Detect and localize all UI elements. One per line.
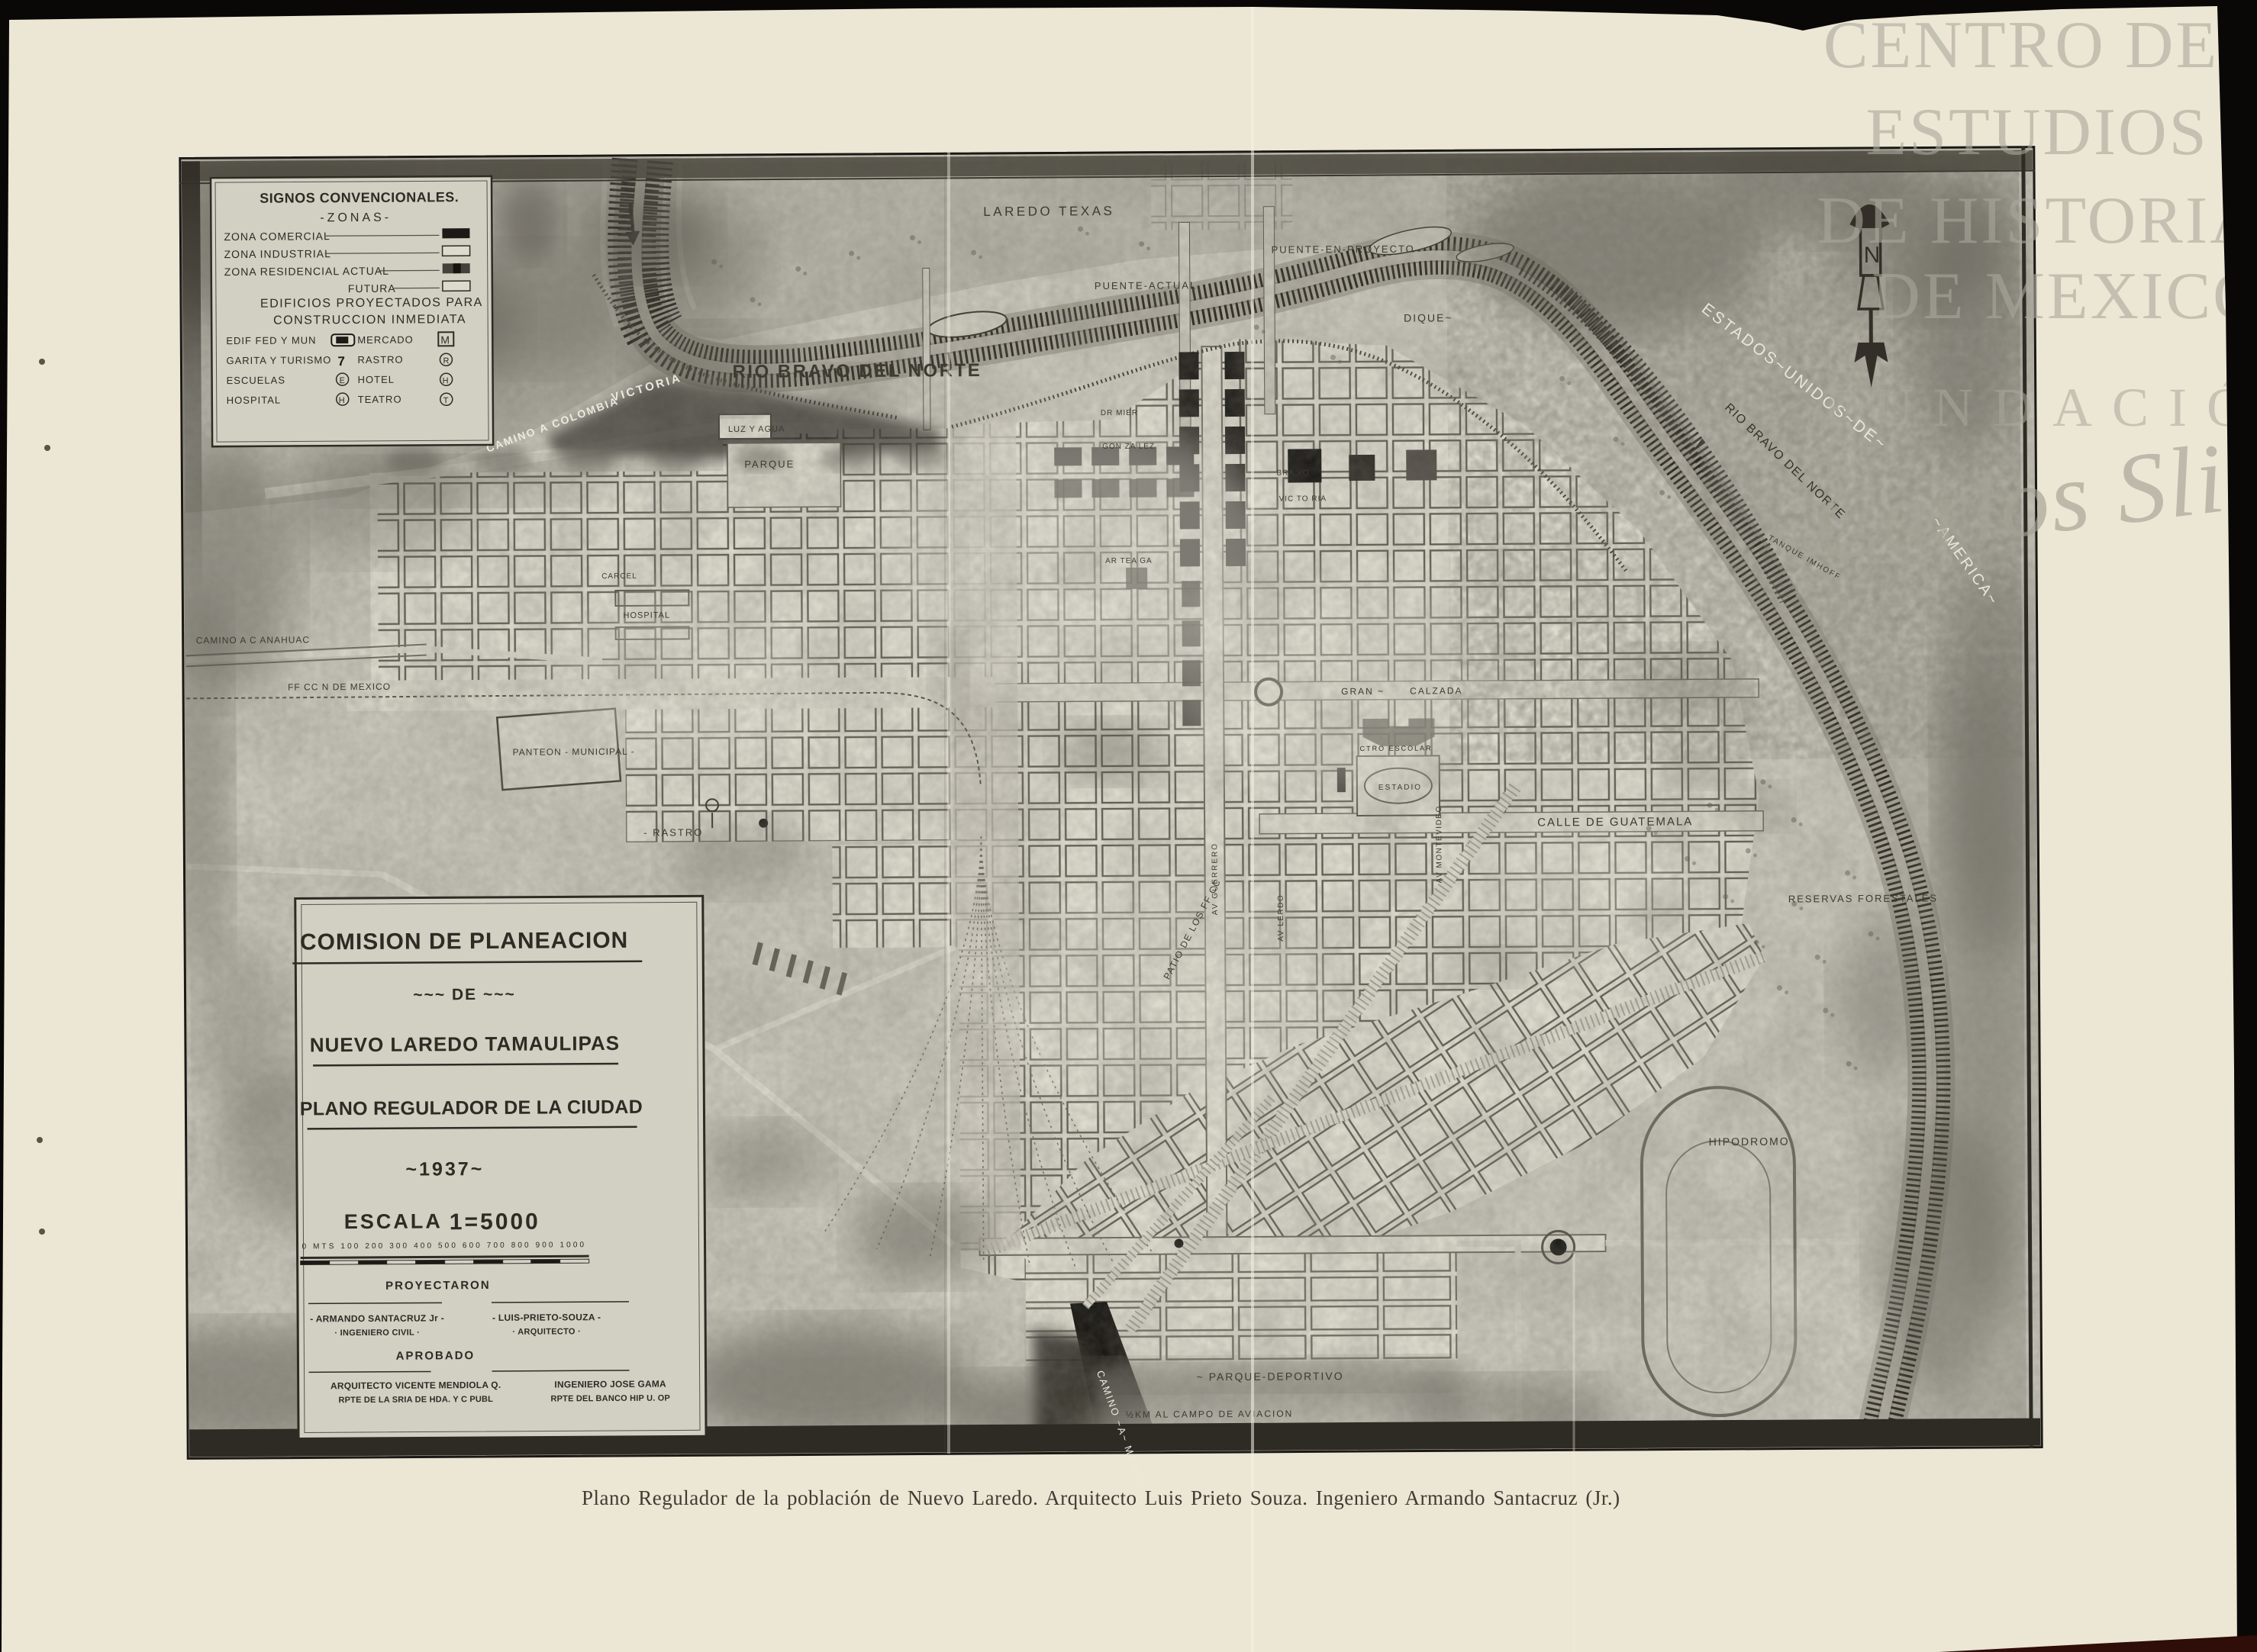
svg-text:DIQUE~: DIQUE~ [1404,311,1453,324]
svg-text:· INGENIERO CIVIL ·: · INGENIERO CIVIL · [334,1328,420,1338]
svg-text:CONSTRUCCION INMEDIATA: CONSTRUCCION INMEDIATA [273,313,466,327]
svg-text:ARQUITECTO VICENTE MENDIOLA Q.: ARQUITECTO VICENTE MENDIOLA Q. [330,1380,501,1391]
svg-text:ESTADIO: ESTADIO [1378,784,1422,792]
svg-text:SIGNOS CONVENCIONALES.: SIGNOS CONVENCIONALES. [260,189,459,206]
svg-text:ESTUDIOS: ESTUDIOS [1865,95,2208,169]
svg-text:DE MEXICO: DE MEXICO [1872,259,2257,333]
svg-text:GRAN ~: GRAN ~ [1341,686,1385,697]
svg-text:PLANO REGULADOR DE LA CIUDAD: PLANO REGULADOR DE LA CIUDAD [300,1097,643,1120]
svg-text:EDIFICIOS PROYECTADOS PARA: EDIFICIOS PROYECTADOS PARA [260,296,483,311]
svg-text:CAMINO A C ANAHUAC: CAMINO A C ANAHUAC [196,634,310,646]
svg-text:VIC TO RIA: VIC TO RIA [1279,494,1327,503]
svg-text:AV MONTEVIDEO: AV MONTEVIDEO [1435,805,1444,883]
svg-text:BRA VO: BRA VO [1276,469,1309,477]
svg-text:RPTE DE LA SRIA DE HDA. Y C PU: RPTE DE LA SRIA DE HDA. Y C PUBL [338,1395,493,1405]
svg-text:AR TEA GA: AR TEA GA [1105,557,1153,565]
svg-text:ZONA INDUSTRIAL: ZONA INDUSTRIAL [224,247,331,260]
svg-text:PUENTE-ACTUAL: PUENTE-ACTUAL [1095,279,1197,291]
svg-text:½KM AL CAMPO DE AVIACION: ½KM AL CAMPO DE AVIACION [1126,1409,1293,1420]
svg-text:~1937~: ~1937~ [405,1158,484,1180]
svg-text:CTRO ESCOLAR: CTRO ESCOLAR [1360,744,1433,752]
svg-text:HIPODROMO: HIPODROMO [1709,1135,1790,1148]
svg-text:DE HISTORIA: DE HISTORIA [1817,184,2257,258]
svg-text:R: R [443,356,449,366]
svg-text:- ARMANDO SANTACRUZ Jr -: - ARMANDO SANTACRUZ Jr - [310,1312,444,1324]
svg-text:MERCADO: MERCADO [357,334,414,346]
svg-text:PANTEON - MUNICIPAL -: PANTEON - MUNICIPAL - [513,746,635,758]
svg-text:APROBADO: APROBADO [396,1349,476,1363]
svg-text:T: T [443,396,449,405]
svg-text:7: 7 [337,354,345,369]
svg-text:HOTEL: HOTEL [358,374,395,385]
svg-text:CALZADA: CALZADA [1410,685,1462,696]
svg-text:LAREDO TEXAS: LAREDO TEXAS [983,204,1114,219]
svg-text:GARITA Y TURISMO: GARITA Y TURISMO [226,354,331,366]
svg-text:RESERVAS FORESTALES: RESERVAS FORESTALES [1788,892,1938,904]
svg-text:COMISION DE PLANEACION: COMISION DE PLANEACION [300,928,629,955]
svg-text:E: E [340,376,345,385]
svg-text:CENTRO DE: CENTRO DE [1823,8,2219,82]
svg-text:ZONA RESIDENCIAL ACTUAL: ZONA RESIDENCIAL ACTUAL [224,265,389,278]
svg-text:LUZ Y AGUA: LUZ Y AGUA [728,425,785,434]
svg-text:PUENTE-EN-PROYECTO: PUENTE-EN-PROYECTO [1272,243,1415,256]
svg-text:ESCUELAS: ESCUELAS [227,375,285,386]
svg-text:M: M [440,333,450,346]
svg-text:NUEVO LAREDO TAMAULIPAS: NUEVO LAREDO TAMAULIPAS [310,1032,620,1056]
svg-text:PARQUE: PARQUE [744,459,795,470]
svg-text:- RASTRO: - RASTRO [643,826,703,838]
svg-text:CALLE DE GUATEMALA: CALLE DE GUATEMALA [1537,815,1693,829]
svg-text:1=5000: 1=5000 [450,1209,540,1235]
svg-text:RPTE DEL BANCO HIP U. OP: RPTE DEL BANCO HIP U. OP [550,1394,670,1404]
svg-text:AV LERDO: AV LERDO [1277,894,1285,942]
svg-text:FF CC N DE MEXICO: FF CC N DE MEXICO [288,681,391,693]
svg-text:H: H [339,396,345,405]
svg-text:AV GUERRERO: AV GUERRERO [1211,842,1220,915]
svg-text:PROYECTARON: PROYECTARON [385,1279,491,1293]
svg-text:Plano Regulador de la població: Plano Regulador de la población de Nuevo… [582,1486,1620,1509]
svg-text:FUTURA: FUTURA [348,282,396,295]
svg-text:~ PARQUE-DEPORTIVO: ~ PARQUE-DEPORTIVO [1197,1370,1344,1383]
svg-text:RASTRO: RASTRO [357,354,403,366]
svg-text:ESCALA: ESCALA [344,1209,443,1233]
svg-text:~~~ DE ~~~: ~~~ DE ~~~ [413,986,516,1004]
svg-text:TEATRO: TEATRO [358,394,402,405]
svg-text:INGENIERO JOSE GAMA: INGENIERO JOSE GAMA [554,1379,666,1390]
svg-text:HOSPITAL: HOSPITAL [623,611,670,620]
svg-text:HOSPITAL: HOSPITAL [227,394,281,406]
svg-text:EDIF FED Y MUN: EDIF FED Y MUN [226,334,316,346]
svg-text:-ZONAS-: -ZONAS- [320,211,392,225]
svg-text:DR MIER: DR MIER [1101,409,1138,417]
svg-text:H: H [443,376,449,385]
svg-text:- LUIS-PRIETO-SOUZA -: - LUIS-PRIETO-SOUZA - [492,1312,601,1323]
svg-text:CARCEL: CARCEL [601,572,637,581]
svg-text:ZONA COMERCIAL: ZONA COMERCIAL [224,230,330,243]
svg-text:· ARQUITECTO ·: · ARQUITECTO · [512,1327,581,1337]
svg-text:GON ZA LEZ: GON ZA LEZ [1102,443,1155,451]
